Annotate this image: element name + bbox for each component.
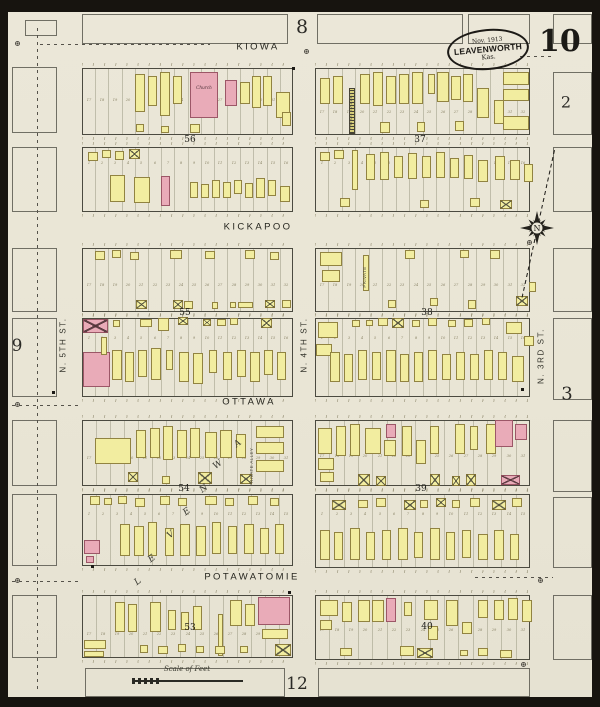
partial-block-outline bbox=[12, 248, 57, 312]
address-number-ticks bbox=[315, 243, 530, 246]
building-frame bbox=[350, 528, 360, 560]
building-frame bbox=[252, 76, 261, 108]
building-frame bbox=[470, 354, 479, 380]
partial-block-outline bbox=[553, 147, 592, 212]
lot-number: 29 bbox=[256, 632, 261, 636]
lot-number: 17 bbox=[86, 98, 91, 102]
lot-number: 21 bbox=[377, 454, 382, 458]
lot-number: 16 bbox=[284, 336, 289, 340]
building-frame bbox=[451, 76, 461, 100]
building-frame bbox=[84, 640, 106, 649]
address-number-ticks bbox=[82, 243, 293, 246]
building-frame bbox=[245, 250, 255, 259]
building-frame-stable bbox=[178, 317, 188, 325]
lot-number: 15 bbox=[521, 512, 526, 516]
lot-number: 26 bbox=[440, 110, 445, 114]
building-frame bbox=[102, 150, 111, 158]
building-frame bbox=[420, 200, 429, 208]
lot-line bbox=[449, 249, 450, 311]
building-frame bbox=[196, 526, 206, 556]
lot-number: 16 bbox=[284, 161, 289, 165]
lot-number: 1 bbox=[87, 336, 89, 340]
building-frame bbox=[463, 74, 473, 102]
building-frame bbox=[256, 460, 284, 472]
water-valve-symbol bbox=[538, 578, 543, 583]
lot-number: 14 bbox=[494, 336, 499, 340]
lot-number: 15 bbox=[271, 336, 276, 340]
survey-corner-dot bbox=[292, 67, 295, 70]
building-frame bbox=[115, 602, 125, 632]
lot-number: 17 bbox=[319, 283, 324, 287]
building-frame bbox=[470, 198, 480, 207]
lot-number: 23 bbox=[165, 283, 170, 287]
building-frame bbox=[470, 426, 478, 450]
lot-number: 2 bbox=[335, 512, 337, 516]
building-frame bbox=[456, 352, 465, 380]
lot-line bbox=[148, 249, 149, 311]
building-frame bbox=[215, 646, 225, 654]
building-frame bbox=[136, 430, 146, 458]
lot-number: 22 bbox=[392, 628, 397, 632]
building-frame bbox=[230, 302, 236, 308]
building-frame bbox=[450, 158, 459, 178]
lot-number: 12 bbox=[478, 512, 483, 516]
address-number-ticks bbox=[315, 399, 530, 402]
building-frame bbox=[256, 178, 265, 198]
building-frame bbox=[376, 498, 386, 507]
adjacent-sheet-number: 9 bbox=[12, 336, 23, 356]
building-frame bbox=[503, 72, 529, 85]
block-number: 55 bbox=[179, 308, 190, 318]
building-brick bbox=[515, 424, 527, 440]
building-frame bbox=[460, 250, 469, 258]
lot-number: 9 bbox=[193, 161, 195, 165]
building-frame bbox=[320, 530, 330, 560]
building-frame bbox=[256, 426, 284, 438]
building-frame bbox=[428, 74, 435, 94]
building-frame bbox=[177, 430, 187, 458]
building-frame bbox=[270, 498, 279, 506]
building-frame bbox=[320, 78, 330, 104]
building-frame bbox=[263, 76, 272, 106]
lot-number: 8 bbox=[415, 336, 417, 340]
building-frame-stable bbox=[275, 644, 291, 656]
lot-number: 28 bbox=[241, 632, 246, 636]
lot-number: 25 bbox=[435, 454, 440, 458]
lot-number: 22 bbox=[387, 283, 392, 287]
lot-number: 19 bbox=[115, 632, 120, 636]
lot-line bbox=[369, 319, 370, 396]
lot-line bbox=[342, 249, 343, 311]
building-frame-stable bbox=[500, 200, 512, 209]
lot-number: 18 bbox=[333, 283, 338, 287]
lot-number: 12 bbox=[467, 336, 472, 340]
building-frame-stable bbox=[417, 648, 433, 658]
lot-number: 6 bbox=[153, 161, 155, 165]
lot-number: 22 bbox=[152, 283, 157, 287]
building-frame bbox=[205, 432, 217, 458]
building-frame bbox=[495, 156, 505, 180]
building-frame bbox=[163, 426, 173, 460]
lot-number: 4 bbox=[361, 161, 363, 165]
lot-number: 6 bbox=[388, 336, 390, 340]
building-frame bbox=[112, 350, 122, 380]
lot-line bbox=[463, 249, 464, 311]
building-frame bbox=[84, 651, 104, 657]
stamp-state: Kas. bbox=[481, 53, 496, 61]
lot-number: 18 bbox=[101, 632, 106, 636]
building-frame bbox=[223, 182, 231, 198]
lot-number: 32 bbox=[521, 110, 526, 114]
building-frame bbox=[442, 354, 451, 380]
lot-number: 25 bbox=[192, 283, 197, 287]
building-frame bbox=[333, 76, 343, 104]
lot-number: 9 bbox=[200, 512, 202, 516]
lot-number: 28 bbox=[231, 283, 236, 287]
building-frame bbox=[173, 76, 182, 104]
building-frame bbox=[277, 352, 286, 380]
lot-number: 9 bbox=[436, 512, 438, 516]
lot-number: 9 bbox=[428, 336, 430, 340]
building-frame bbox=[529, 282, 536, 292]
lot-number: 28 bbox=[478, 454, 483, 458]
church-label: Church bbox=[196, 85, 212, 90]
building-frame bbox=[264, 350, 273, 375]
adjacent-sheet-number: 12 bbox=[286, 674, 308, 694]
building-frame bbox=[282, 300, 291, 308]
building-frame-stable bbox=[430, 474, 440, 486]
building-frame bbox=[430, 528, 440, 560]
block-number: 53 bbox=[184, 623, 195, 633]
building-frame-stable bbox=[492, 500, 506, 510]
lot-number: 1 bbox=[321, 512, 323, 516]
lot-number: 29 bbox=[492, 454, 497, 458]
lot-line bbox=[227, 148, 228, 211]
building-frame bbox=[420, 500, 428, 508]
building-brick bbox=[83, 352, 110, 387]
building-frame bbox=[366, 532, 375, 560]
lot-line bbox=[96, 495, 97, 565]
lot-number: 19 bbox=[113, 283, 118, 287]
building-frame bbox=[112, 250, 121, 258]
building-frame bbox=[430, 298, 438, 306]
building-frame bbox=[382, 530, 391, 560]
building-brick bbox=[190, 72, 218, 118]
building-frame bbox=[168, 610, 176, 630]
lot-number: 26 bbox=[449, 454, 454, 458]
building-frame bbox=[452, 500, 460, 508]
lot-line bbox=[122, 249, 123, 311]
building-frame bbox=[494, 530, 504, 560]
lot-number: 21 bbox=[139, 283, 144, 287]
lot-number: 29 bbox=[492, 628, 497, 632]
water-valve-symbol bbox=[521, 662, 526, 667]
building-brick bbox=[161, 176, 170, 206]
building-frame bbox=[522, 600, 532, 622]
lot-number: 20 bbox=[129, 632, 134, 636]
lot-number: 17 bbox=[87, 632, 92, 636]
lot-number: 7 bbox=[172, 512, 174, 516]
lot-number: 31 bbox=[284, 456, 289, 460]
building-frame-stable bbox=[376, 476, 386, 486]
building-frame bbox=[498, 352, 507, 380]
building-frame bbox=[400, 646, 414, 656]
building-brick bbox=[225, 80, 237, 106]
building-frame bbox=[140, 645, 148, 653]
building-frame bbox=[402, 426, 412, 456]
building-frame bbox=[340, 198, 350, 207]
building-frame bbox=[350, 424, 360, 456]
building-frame bbox=[358, 500, 368, 508]
lot-number: 18 bbox=[334, 628, 339, 632]
building-frame bbox=[352, 320, 360, 327]
building-frame bbox=[128, 604, 137, 632]
lot-number: 31 bbox=[508, 110, 513, 114]
lot-number: 30 bbox=[506, 454, 511, 458]
lot-number: 28 bbox=[478, 628, 483, 632]
building-frame bbox=[240, 646, 248, 653]
address-number-ticks bbox=[315, 662, 530, 665]
lot-number: 23 bbox=[400, 283, 405, 287]
building-frame bbox=[330, 352, 340, 382]
building-frame bbox=[336, 426, 346, 456]
lot-number: 13 bbox=[492, 512, 497, 516]
building-frame bbox=[510, 534, 519, 560]
building-frame bbox=[225, 498, 234, 506]
building-frame bbox=[322, 270, 340, 282]
water-main-line bbox=[37, 28, 38, 692]
lot-number: 30 bbox=[494, 283, 499, 287]
building-frame bbox=[399, 74, 409, 104]
building-frame bbox=[190, 182, 198, 198]
block-number: 39 bbox=[415, 484, 426, 494]
building-frame bbox=[462, 530, 471, 558]
building-frame bbox=[134, 177, 150, 203]
lot-number: 7 bbox=[167, 336, 169, 340]
lot-number: 13 bbox=[245, 336, 250, 340]
building-frame bbox=[478, 534, 488, 560]
building-frame bbox=[412, 320, 420, 327]
building-frame bbox=[234, 180, 242, 194]
lot-line bbox=[148, 319, 149, 396]
building-frame bbox=[386, 350, 396, 382]
lot-number: 8 bbox=[180, 161, 182, 165]
partial-block-outline bbox=[318, 668, 530, 697]
building-frame bbox=[503, 116, 529, 130]
building-frame bbox=[340, 648, 352, 656]
water-valve-symbol bbox=[15, 41, 20, 46]
lot-line bbox=[409, 319, 410, 396]
building-frame bbox=[248, 496, 258, 505]
lot-line bbox=[110, 495, 111, 565]
building-frame bbox=[446, 532, 455, 560]
building-frame bbox=[268, 180, 276, 196]
lot-number: 27 bbox=[454, 110, 459, 114]
building-frame bbox=[136, 124, 144, 132]
adjacent-sheet-number: 3 bbox=[561, 384, 572, 405]
lot-number: 4 bbox=[364, 512, 366, 516]
building-frame bbox=[416, 440, 426, 464]
lot-number: 26 bbox=[440, 283, 445, 287]
building-frame bbox=[318, 322, 338, 338]
lot-number: 13 bbox=[481, 336, 486, 340]
lot-number: 18 bbox=[333, 110, 338, 114]
partial-block-outline bbox=[553, 595, 592, 660]
building-frame bbox=[260, 528, 269, 554]
building-frame bbox=[217, 319, 226, 326]
lot-number: 10 bbox=[449, 512, 454, 516]
building-frame bbox=[352, 150, 358, 190]
building-frame bbox=[193, 353, 203, 384]
lot-number: 8 bbox=[421, 512, 423, 516]
lot-number: 4 bbox=[127, 161, 129, 165]
building-frame bbox=[190, 124, 200, 133]
lot-line bbox=[122, 69, 123, 134]
building-frame bbox=[212, 302, 218, 309]
building-frame-stable bbox=[436, 498, 446, 507]
building-frame bbox=[212, 180, 220, 198]
lot-number: 28 bbox=[467, 283, 472, 287]
lot-number: 21 bbox=[373, 283, 378, 287]
lot-line bbox=[223, 495, 224, 565]
partial-block-outline bbox=[82, 14, 288, 44]
lot-number: 7 bbox=[167, 161, 169, 165]
building-frame bbox=[462, 622, 472, 634]
lot-number: 26 bbox=[205, 283, 210, 287]
building-frame bbox=[130, 252, 139, 260]
partial-block-outline bbox=[12, 420, 57, 486]
lot-line bbox=[355, 319, 356, 396]
building-frame bbox=[414, 352, 423, 382]
map-sheet: 1718192021222324252627282930313212345678… bbox=[0, 0, 600, 707]
lot-number: 14 bbox=[258, 161, 263, 165]
lot-number: 10 bbox=[440, 336, 445, 340]
building-frame bbox=[110, 175, 125, 202]
building-frame bbox=[282, 112, 291, 126]
water-valve-symbol bbox=[15, 578, 20, 583]
building-frame bbox=[238, 302, 253, 308]
lot-line bbox=[490, 69, 491, 134]
building-frame bbox=[394, 156, 403, 178]
lot-number: 29 bbox=[245, 283, 250, 287]
building-frame bbox=[245, 183, 253, 198]
block-number: 54 bbox=[178, 484, 189, 494]
lot-number: 17 bbox=[319, 110, 324, 114]
lot-number: 11 bbox=[227, 512, 232, 516]
building-frame bbox=[437, 72, 449, 102]
lot-number: 21 bbox=[373, 110, 378, 114]
street-name-n-3rd-st-: N. 3RD ST. bbox=[537, 328, 546, 384]
building-frame-stable bbox=[358, 474, 370, 486]
lot-number: 11 bbox=[454, 336, 459, 340]
building-frame bbox=[230, 600, 242, 626]
building-frame bbox=[455, 121, 464, 131]
building-brick-stable bbox=[501, 475, 520, 485]
partial-block-outline bbox=[12, 67, 57, 133]
lot-number: 27 bbox=[218, 283, 223, 287]
building-frame bbox=[320, 600, 338, 616]
lot-line bbox=[409, 69, 410, 134]
lot-number: 3 bbox=[114, 336, 116, 340]
building-frame bbox=[209, 350, 217, 373]
building-frame bbox=[358, 600, 370, 622]
lot-number: 10 bbox=[205, 161, 210, 165]
building-frame bbox=[380, 152, 389, 180]
scale-of-feet-label: Scale of Feet bbox=[164, 665, 210, 673]
building-frame bbox=[223, 352, 232, 380]
building-frame bbox=[512, 356, 524, 382]
building-frame bbox=[424, 600, 438, 620]
building-frame-stable bbox=[261, 318, 272, 328]
building-frame bbox=[135, 498, 145, 507]
building-frame bbox=[373, 72, 383, 106]
lot-number: 22 bbox=[157, 632, 162, 636]
address-number-ticks bbox=[82, 214, 293, 217]
building-frame bbox=[190, 428, 200, 458]
lot-line bbox=[280, 249, 281, 311]
lot-number: 26 bbox=[449, 628, 454, 632]
lot-number: 12 bbox=[241, 512, 246, 516]
lot-line bbox=[382, 319, 383, 396]
survey-corner-dot bbox=[91, 565, 94, 568]
building-frame bbox=[460, 650, 468, 656]
private-alley-label: PRIVATE ALLEY bbox=[349, 92, 354, 130]
lot-number: 19 bbox=[113, 98, 118, 102]
building-brick bbox=[386, 424, 396, 438]
building-brick bbox=[386, 598, 396, 622]
street-name-n-5th-st-: N. 5TH ST. bbox=[59, 317, 68, 372]
building-frame bbox=[414, 532, 423, 558]
building-frame bbox=[464, 319, 473, 327]
lot-number: 19 bbox=[346, 283, 351, 287]
address-number-ticks bbox=[315, 570, 530, 573]
lot-number: 15 bbox=[508, 336, 513, 340]
building-frame bbox=[170, 250, 182, 259]
water-main-line bbox=[40, 44, 210, 45]
building-frame bbox=[422, 156, 431, 178]
building-frame bbox=[148, 522, 157, 556]
building-frame bbox=[320, 620, 332, 630]
lot-number: 2 bbox=[101, 161, 103, 165]
block-number: 37 bbox=[414, 135, 425, 145]
lot-number: 20 bbox=[363, 454, 368, 458]
building-frame bbox=[524, 164, 533, 182]
building-frame bbox=[237, 350, 246, 377]
building-frame bbox=[90, 496, 100, 505]
building-frame bbox=[400, 354, 409, 382]
building-frame bbox=[320, 252, 342, 266]
adjacent-sheet-number: 2 bbox=[561, 93, 571, 112]
building-frame bbox=[162, 476, 170, 484]
building-frame-stable bbox=[203, 319, 211, 326]
lot-line bbox=[490, 148, 491, 211]
lot-number: 31 bbox=[521, 628, 526, 632]
lot-line bbox=[95, 69, 96, 134]
building-frame bbox=[220, 430, 232, 458]
building-frame bbox=[135, 74, 145, 112]
lot-line bbox=[355, 69, 356, 134]
lot-number: 24 bbox=[413, 283, 418, 287]
lot-number: 2 bbox=[102, 512, 104, 516]
lot-number: 7 bbox=[401, 336, 403, 340]
lot-number: 20 bbox=[126, 283, 131, 287]
lot-number: 8 bbox=[180, 336, 182, 340]
lot-number: 17 bbox=[86, 283, 91, 287]
building-frame bbox=[280, 186, 290, 202]
building-frame bbox=[115, 151, 124, 160]
lot-number: 3 bbox=[350, 512, 352, 516]
lot-number: 17 bbox=[87, 456, 92, 460]
